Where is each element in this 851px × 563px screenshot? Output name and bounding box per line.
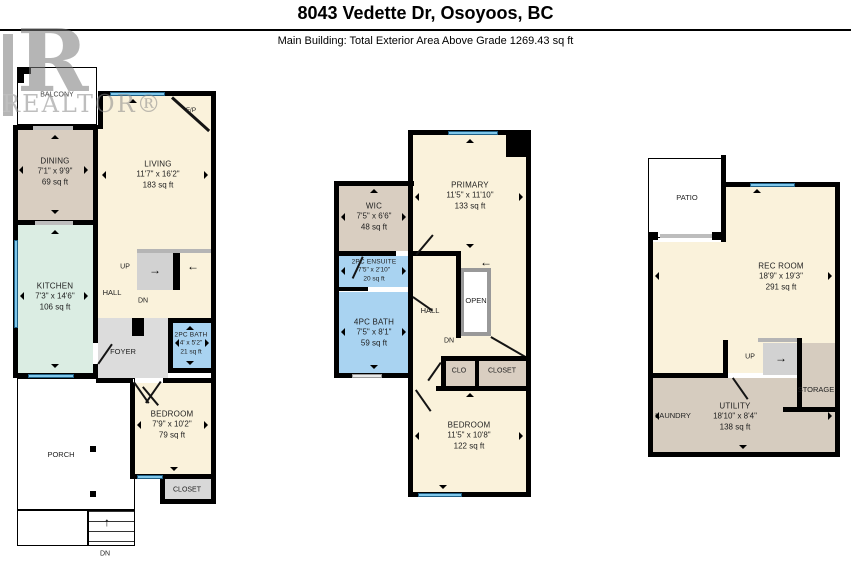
wall bbox=[413, 251, 461, 256]
room-dims: 7'5" x 6'6" bbox=[357, 212, 392, 222]
wall bbox=[648, 452, 840, 457]
floorplan-sheet: 8043 Vedette Dr, Osoyoos, BC Main Buildi… bbox=[0, 0, 851, 563]
sliding-door bbox=[33, 126, 73, 130]
dimension-arrow-icon bbox=[84, 292, 88, 300]
dimension-arrow-icon bbox=[828, 412, 832, 420]
window bbox=[418, 493, 462, 497]
porch-label: PORCH bbox=[47, 450, 74, 460]
room-dims: 7'3" x 14'6" bbox=[35, 292, 74, 302]
stair-arrow-left-icon: ← bbox=[480, 256, 492, 268]
stair-handrail bbox=[758, 338, 802, 342]
window bbox=[448, 131, 498, 135]
wall bbox=[334, 287, 368, 291]
dimension-arrow-icon bbox=[415, 432, 419, 440]
wall bbox=[163, 378, 216, 383]
room-name: 2PC ENSUITE bbox=[352, 258, 397, 266]
wall bbox=[408, 185, 413, 375]
room-name: REC ROOM bbox=[758, 261, 804, 271]
room-name: UTILITY bbox=[713, 401, 757, 411]
stair-arrow-right-icon: → bbox=[149, 264, 161, 276]
dimension-arrow-icon bbox=[204, 171, 208, 179]
wall bbox=[130, 383, 135, 479]
bath-door bbox=[352, 374, 382, 378]
room-storage bbox=[802, 343, 835, 378]
dimension-arrow-icon bbox=[466, 393, 474, 397]
sliding-door bbox=[660, 234, 712, 238]
porch-stairs bbox=[88, 510, 135, 546]
dimension-arrow-icon bbox=[655, 272, 659, 280]
room-label-utility: UTILITY 18'10" x 8'4" 138 sq ft bbox=[713, 401, 757, 432]
room-name: PRIMARY bbox=[446, 180, 493, 190]
stairs-up-label-lower: UP bbox=[745, 352, 755, 361]
dimension-arrow-icon bbox=[402, 213, 406, 221]
room-name: BEDROOM bbox=[151, 409, 194, 419]
dimension-arrow-icon bbox=[341, 328, 345, 336]
stair-arrow-left-icon: ← bbox=[187, 260, 199, 272]
hall-label: HALL bbox=[103, 288, 122, 298]
dimension-arrow-icon bbox=[402, 328, 406, 336]
dimension-arrow-icon bbox=[753, 189, 761, 193]
wall bbox=[96, 378, 133, 383]
dimension-arrow-icon bbox=[129, 99, 137, 103]
wall bbox=[160, 499, 216, 504]
room-name: 4PC BATH bbox=[354, 317, 394, 327]
porch-post bbox=[90, 446, 96, 452]
room-name: WIC bbox=[357, 201, 392, 211]
dimension-arrow-icon bbox=[341, 213, 345, 221]
wall bbox=[408, 130, 413, 186]
room-label-balcony: BALCONY bbox=[40, 90, 73, 99]
room-area: 106 sq ft bbox=[35, 302, 74, 312]
room-label-bedroom-upper: BEDROOM 11'5" x 10'8" 122 sq ft bbox=[447, 420, 490, 451]
room-area: 21 sq ft bbox=[175, 348, 208, 356]
dimension-arrow-icon bbox=[519, 193, 523, 201]
room-area: 48 sq ft bbox=[357, 222, 392, 232]
wall bbox=[436, 386, 531, 391]
wall bbox=[168, 318, 216, 323]
dimension-arrow-icon bbox=[341, 267, 345, 275]
window bbox=[750, 183, 795, 187]
header-divider bbox=[0, 29, 851, 31]
stairs-dn-main bbox=[150, 292, 211, 318]
room-name: 2PC BATH bbox=[175, 331, 208, 339]
wall bbox=[797, 338, 802, 410]
wall bbox=[168, 368, 216, 373]
wall bbox=[211, 91, 216, 504]
dimension-arrow-icon bbox=[102, 171, 106, 179]
stairs-dn-label-upper: DN bbox=[444, 336, 454, 345]
balcony-step bbox=[17, 67, 24, 83]
foyer-label: FOYER bbox=[110, 347, 136, 357]
laundry-label: LAUNDRY bbox=[655, 411, 691, 421]
wall bbox=[456, 256, 461, 338]
room-rec-b bbox=[653, 242, 726, 373]
room-area: 69 sq ft bbox=[38, 177, 73, 187]
patio-stub bbox=[648, 232, 658, 240]
wall bbox=[721, 155, 726, 242]
room-label-bath4pc: 4PC BATH 7'5" x 8'1" 59 sq ft bbox=[354, 317, 394, 348]
porch-stair-arrow-up-icon: ↑ bbox=[104, 516, 110, 528]
dimension-arrow-icon bbox=[519, 432, 523, 440]
room-label-bedroom-main: BEDROOM 7'9" x 10'2" 79 sq ft bbox=[151, 409, 194, 440]
room-dims: 7'1" x 9'9" bbox=[38, 167, 73, 177]
wall bbox=[648, 237, 653, 457]
dimension-arrow-icon bbox=[20, 292, 24, 300]
wall bbox=[441, 356, 531, 361]
page-title: 8043 Vedette Dr, Osoyoos, BC bbox=[0, 3, 851, 24]
dimension-arrow-icon bbox=[205, 339, 209, 347]
room-name: BEDROOM bbox=[447, 420, 490, 430]
wall bbox=[93, 125, 98, 343]
room-name: LIVING bbox=[136, 159, 179, 169]
dimension-arrow-icon bbox=[439, 485, 447, 489]
room-area: 59 sq ft bbox=[354, 338, 394, 348]
window bbox=[28, 374, 74, 378]
room-dims: 18'10" x 8'4" bbox=[713, 412, 757, 422]
room-area: 291 sq ft bbox=[758, 282, 804, 292]
dimension-arrow-icon bbox=[51, 210, 59, 214]
wall bbox=[723, 340, 728, 378]
dimension-arrow-icon bbox=[175, 339, 179, 347]
room-dims: 7'5" x 8'1" bbox=[354, 328, 394, 338]
open-label: OPEN bbox=[465, 296, 486, 306]
wall bbox=[441, 356, 446, 388]
porch-outline bbox=[17, 378, 135, 510]
room-label-bath2pc: 2PC BATH 4' x 5'2" 21 sq ft bbox=[175, 331, 208, 356]
room-label-rec: REC ROOM 18'9" x 19'3" 291 sq ft bbox=[758, 261, 804, 292]
room-label-kitchen: KITCHEN 7'3" x 14'6" 106 sq ft bbox=[35, 281, 74, 312]
corner-block bbox=[506, 133, 528, 157]
dimension-arrow-icon bbox=[402, 267, 406, 275]
dimension-arrow-icon bbox=[186, 326, 194, 330]
stairs-dn-label: DN bbox=[138, 296, 148, 305]
stair-arrow-right-icon: → bbox=[775, 352, 787, 364]
room-dims: 11'5" x 10'8" bbox=[447, 431, 490, 441]
wall bbox=[334, 181, 339, 378]
wall bbox=[835, 182, 840, 457]
room-name: KITCHEN bbox=[35, 281, 74, 291]
stairs-up-label: UP bbox=[120, 262, 130, 271]
room-area: 138 sq ft bbox=[713, 422, 757, 432]
clo-label: CLO bbox=[452, 366, 466, 375]
room-area: 20 sq ft bbox=[352, 275, 397, 283]
hall-label-upper: HALL bbox=[421, 306, 440, 316]
closet-label-upper: CLOSET bbox=[488, 366, 516, 375]
dimension-arrow-icon bbox=[466, 244, 474, 248]
dimension-arrow-icon bbox=[51, 230, 59, 234]
dimension-arrow-icon bbox=[186, 361, 194, 365]
wall bbox=[93, 364, 98, 378]
page-subtitle: Main Building: Total Exterior Area Above… bbox=[0, 35, 851, 47]
wall bbox=[526, 130, 531, 497]
room-name: DINING bbox=[38, 156, 73, 166]
room-area: 79 sq ft bbox=[151, 430, 194, 440]
porch-post bbox=[90, 491, 96, 497]
foyer-wall-block bbox=[132, 318, 144, 336]
room-dims: 11'7" x 16'2" bbox=[136, 170, 179, 180]
dimension-arrow-icon bbox=[51, 364, 59, 368]
wall bbox=[168, 318, 173, 373]
dimension-arrow-icon bbox=[466, 139, 474, 143]
dimension-arrow-icon bbox=[415, 193, 419, 201]
dimension-arrow-icon bbox=[19, 166, 23, 174]
room-label-living: LIVING 11'7" x 16'2" 183 sq ft bbox=[136, 159, 179, 190]
closet-label: CLOSET bbox=[173, 485, 201, 494]
room-area: 183 sq ft bbox=[136, 180, 179, 190]
stair-divider-wall bbox=[173, 253, 180, 290]
room-area: 133 sq ft bbox=[446, 201, 493, 211]
storage-label: STORAGE bbox=[798, 385, 835, 395]
dimension-arrow-icon bbox=[739, 445, 747, 449]
wall bbox=[334, 251, 396, 256]
wall bbox=[648, 373, 728, 378]
dimension-arrow-icon bbox=[655, 412, 659, 420]
fireplace-label: F/P bbox=[186, 107, 196, 115]
wall bbox=[408, 373, 413, 497]
room-dims: 4' x 5'2" bbox=[175, 340, 208, 348]
room-dims: 11'5" x 11'10" bbox=[446, 191, 493, 201]
room-label-ensuite: 2PC ENSUITE 7'5" x 2'10" 20 sq ft bbox=[352, 258, 397, 283]
room-dims: 7'9" x 10'2" bbox=[151, 420, 194, 430]
dimension-arrow-icon bbox=[51, 135, 59, 139]
room-label-wic: WIC 7'5" x 6'6" 48 sq ft bbox=[357, 201, 392, 232]
window bbox=[14, 240, 18, 328]
room-label-primary: PRIMARY 11'5" x 11'10" 133 sq ft bbox=[446, 180, 493, 211]
porch-lower-outline bbox=[17, 510, 88, 546]
sliding-door bbox=[35, 221, 73, 225]
dimension-arrow-icon bbox=[204, 421, 208, 429]
wall bbox=[98, 91, 103, 129]
dimension-arrow-icon bbox=[828, 272, 832, 280]
room-dims: 18'9" x 19'3" bbox=[758, 272, 804, 282]
dimension-arrow-icon bbox=[84, 166, 88, 174]
room-dims: 7'5" x 2'10" bbox=[352, 267, 397, 275]
porch-dn-label: DN bbox=[100, 549, 110, 558]
window bbox=[110, 92, 165, 96]
room-label-dining: DINING 7'1" x 9'9" 69 sq ft bbox=[38, 156, 73, 187]
dimension-arrow-icon bbox=[370, 189, 378, 193]
patio-label: PATIO bbox=[676, 193, 697, 203]
wall bbox=[334, 181, 414, 186]
patio-stub bbox=[712, 232, 724, 240]
dimension-arrow-icon bbox=[137, 421, 141, 429]
dimension-arrow-icon bbox=[170, 467, 178, 471]
dimension-arrow-icon bbox=[370, 365, 378, 369]
stairs-upper-right bbox=[491, 268, 526, 336]
wall bbox=[475, 361, 479, 388]
room-area: 122 sq ft bbox=[447, 441, 490, 451]
window bbox=[137, 475, 163, 479]
